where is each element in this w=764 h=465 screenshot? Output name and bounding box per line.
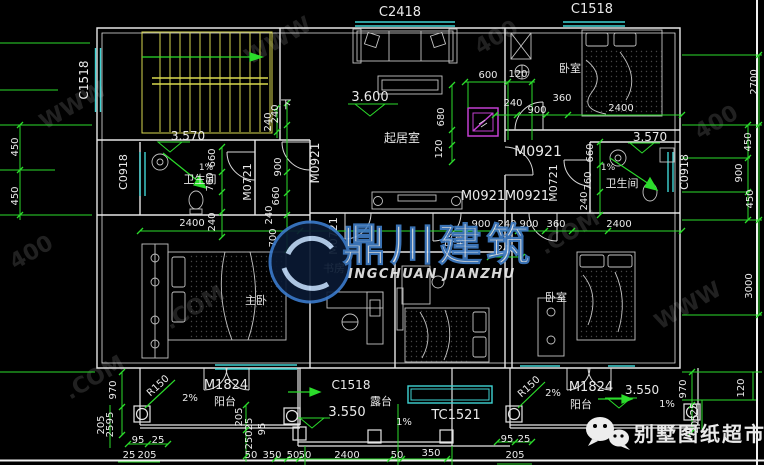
dim-450-left-2: 450 bbox=[10, 186, 21, 205]
dim-240-chain-2: 240 bbox=[264, 205, 275, 224]
dim-2400-master: 2400 bbox=[179, 218, 204, 229]
dim-120-bottom-right: 120 bbox=[736, 378, 747, 397]
room-label-living: 起居室 bbox=[384, 130, 420, 145]
window-c2418 bbox=[355, 22, 455, 26]
dim-240-bath-right: 240 bbox=[579, 191, 590, 210]
dim-250-bl: 250 bbox=[244, 430, 255, 449]
room-label-bath-right: 卫生间 bbox=[606, 176, 639, 190]
door-label-m0721-bath-right: M0721 bbox=[547, 164, 560, 202]
dim-760-bath-left: 760 bbox=[205, 172, 216, 191]
dim-600: 600 bbox=[478, 70, 497, 81]
wechat-icon bbox=[586, 417, 630, 450]
dim-360-top: 360 bbox=[552, 93, 571, 104]
dim-680-living: 680 bbox=[436, 107, 447, 126]
dim-205-bl-b: 205 bbox=[137, 450, 156, 461]
dim-25-bl-d: 25 bbox=[244, 418, 255, 431]
dim-95-bl-b: 95 bbox=[132, 435, 145, 446]
logo-en-text: INGCHUAN JIANZHU bbox=[348, 267, 516, 282]
slope-1pct-terrace: 1% bbox=[396, 417, 412, 428]
dim-760-bath-right: 760 bbox=[583, 171, 594, 190]
room-label-master: 主卧 bbox=[245, 294, 267, 307]
dim-900-right: 900 bbox=[734, 163, 745, 182]
room-label-bedroom-right: 卧室 bbox=[545, 290, 567, 304]
bed-right bbox=[577, 252, 635, 340]
window-label-c1518-bottom: C1518 bbox=[332, 378, 371, 392]
watermark-fragment: 400 bbox=[6, 231, 58, 276]
watermark-fragment: WWW bbox=[651, 277, 727, 335]
slope-1pct-bath-right: 1% bbox=[601, 163, 616, 173]
dim-2400-bc: 2400 bbox=[334, 450, 359, 461]
door-m0921-living bbox=[282, 142, 310, 170]
desk-study bbox=[327, 292, 383, 344]
watermark-fragment: WWW bbox=[241, 12, 317, 70]
dim-240-bath-left: 240 bbox=[207, 212, 218, 231]
dim-50-bc-c: 50 bbox=[391, 450, 404, 461]
dim-240-chain: 240 bbox=[270, 104, 281, 123]
shop-name-text: 别墅图纸超市 bbox=[633, 422, 764, 446]
level-3570-right: 3.570 bbox=[633, 130, 667, 144]
dim-660-bath-right: 660 bbox=[585, 143, 596, 162]
dim-660-chain: 660 bbox=[271, 186, 282, 205]
slope-1pct-balcony-right: 1% bbox=[659, 399, 675, 410]
dim-25-bl-b: 25 bbox=[152, 435, 165, 446]
window-c1518-top bbox=[563, 22, 625, 26]
door-label-m0921-b: M0921 bbox=[505, 189, 549, 204]
bathroom-right-fixtures bbox=[610, 148, 674, 201]
door-label-m0921-living: M0921 bbox=[308, 143, 322, 184]
dim-240-top: 240 bbox=[503, 98, 522, 109]
dim-3000-right: 3000 bbox=[744, 273, 755, 298]
dim-50-bc-a: 50 bbox=[287, 450, 300, 461]
dim-120-living: 120 bbox=[434, 139, 445, 158]
sofa-living bbox=[353, 29, 457, 94]
dim-95-bl-a: 95 bbox=[105, 412, 116, 425]
logo-cn-text: 鼎川建筑 bbox=[342, 220, 534, 271]
room-label-terrace: 露台 bbox=[370, 394, 392, 408]
watermark-fragment: .COM bbox=[61, 351, 130, 405]
tv-cabinet-living bbox=[372, 192, 462, 209]
radius-r150-right: R150 bbox=[516, 374, 543, 400]
slope-2pct-balcony-left: 2% bbox=[182, 393, 198, 404]
dim-50-bc-b: 50 bbox=[299, 450, 312, 461]
slope-2pct-balcony-right: 2% bbox=[545, 388, 561, 399]
floor-plan-canvas: WWW 400 .COM WWW .COM 400 400 WWW .COM bbox=[0, 0, 764, 465]
dim-2400-mid: 2400 bbox=[606, 219, 631, 230]
dim-970-bottom-right: 970 bbox=[678, 379, 689, 398]
level-3550-right: 3.550 bbox=[625, 383, 659, 397]
floor-plan-drawing: WWW 400 .COM WWW .COM 400 400 WWW .COM bbox=[0, 0, 764, 465]
flue-shaft bbox=[468, 108, 498, 136]
dim-360-mid: 360 bbox=[546, 219, 565, 230]
dim-450-right-2: 450 bbox=[745, 189, 756, 208]
wardrobe-bedroom-right bbox=[538, 298, 564, 356]
dim-25-bc: 25 bbox=[518, 434, 531, 445]
stair-down-label: 下 bbox=[281, 98, 292, 111]
window-label-c2418: C2418 bbox=[379, 5, 421, 20]
dim-450-right-1: 450 bbox=[743, 132, 754, 151]
watermark-fragment: WWW bbox=[36, 77, 112, 135]
window-label-c1518-top: C1518 bbox=[571, 2, 613, 17]
door-label-m0921-center: M0921 bbox=[514, 144, 562, 160]
wardrobe-master bbox=[142, 244, 168, 358]
room-label-balcony-left: 阳台 bbox=[214, 394, 236, 408]
terrace-railing-inner bbox=[411, 389, 489, 400]
dim-900-top: 900 bbox=[527, 105, 546, 116]
window-c0918-left bbox=[140, 152, 145, 196]
window-label-tc1521: TC1521 bbox=[430, 408, 480, 423]
dim-95-bl-c: 95 bbox=[257, 423, 268, 436]
door-label-m1824-left: M1824 bbox=[204, 378, 248, 393]
dim-120-top: 120 bbox=[508, 69, 527, 80]
level-3600: 3.600 bbox=[351, 90, 388, 105]
level-3550-center: 3.550 bbox=[328, 405, 365, 420]
door-label-m1824-right: M1824 bbox=[569, 380, 613, 395]
dim-350-bc: 350 bbox=[421, 448, 440, 459]
dim-205-bc: 205 bbox=[505, 450, 524, 461]
dim-2400-top: 2400 bbox=[608, 103, 633, 114]
window-label-c1518-left: C1518 bbox=[77, 61, 91, 100]
room-label-bedroom-top-right: 卧室 bbox=[559, 61, 581, 75]
shop-watermark: 别墅图纸超市 bbox=[586, 417, 764, 450]
level-3570-left: 3.570 bbox=[171, 129, 205, 143]
watermark-fragment: 400 bbox=[691, 101, 743, 146]
room-label-balcony-right: 阳台 bbox=[570, 397, 592, 411]
window-label-c0918-left: C0918 bbox=[117, 154, 130, 190]
door-label-m0921-a: M0921 bbox=[461, 189, 505, 204]
window-label-c0918-right: C0918 bbox=[678, 154, 691, 190]
dim-25-bl-c: 25 bbox=[123, 450, 136, 461]
dim-350-bl: 350 bbox=[262, 450, 281, 461]
dim-25-br: 25 bbox=[689, 403, 700, 416]
dim-970-bottom-left: 970 bbox=[108, 380, 119, 399]
window-c0918-right bbox=[668, 152, 673, 192]
dim-2700-right: 2700 bbox=[749, 69, 760, 94]
dim-25-bl-a: 25 bbox=[105, 425, 116, 438]
dim-50-bl: 50 bbox=[245, 450, 258, 461]
dim-660-bath-left: 660 bbox=[207, 148, 218, 167]
door-label-m0721-bath-left: M0721 bbox=[241, 163, 254, 201]
dim-900-chain: 900 bbox=[273, 157, 284, 176]
dim-95-bc: 95 bbox=[501, 434, 514, 445]
dim-450-left-1: 450 bbox=[10, 137, 21, 156]
